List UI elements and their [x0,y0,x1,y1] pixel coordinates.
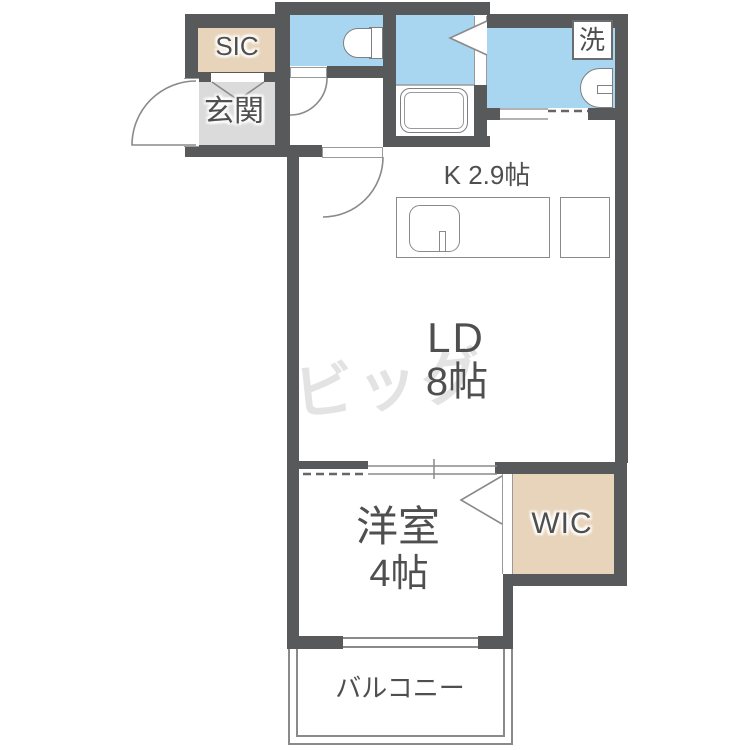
toilet-door-arc [290,78,327,115]
label-living: LD [427,317,485,359]
label-sic: SIC [215,33,258,59]
floorplan: ビッグ SIC 玄関 洗 K 2.9帖 LD 8帖 洋室 4帖 WIC バルコニ… [0,0,750,750]
hall-door-arc [323,157,383,217]
entrance-door-arc [132,81,196,145]
label-laundry: 洗 [579,27,605,53]
label-living-size: 8帖 [426,362,488,402]
plan-line-overlay [0,0,750,750]
label-balcony: バルコニー [335,675,464,701]
label-genkan: 玄関 [204,97,264,127]
bathroom-door-marker [450,21,487,55]
label-kitchen: K 2.9帖 [444,162,531,188]
label-wic: WIC [531,509,592,539]
wic-door-marker [461,476,502,524]
label-bedroom-size: 4帖 [369,555,428,593]
label-bedroom: 洋室 [356,506,440,548]
